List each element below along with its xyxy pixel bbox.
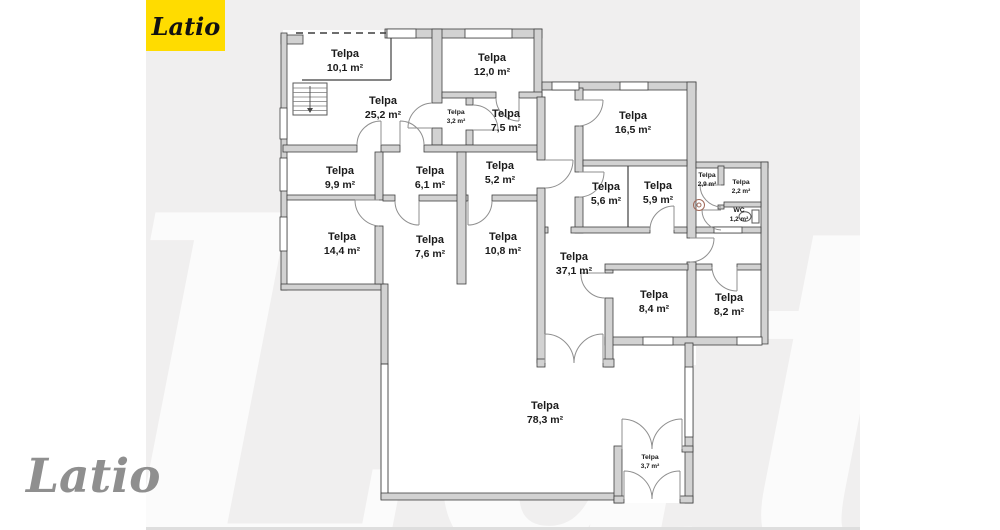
room-area: 37,1 m² xyxy=(556,265,593,277)
room-area: 10,8 m² xyxy=(485,245,522,257)
latio-footer-logo: Latio xyxy=(24,449,160,504)
room-area: 78,3 m² xyxy=(527,414,564,426)
floorplan-svg: Latio xyxy=(0,0,1000,530)
room-area: 7,6 m² xyxy=(415,248,446,260)
room-area: 2,9 m² xyxy=(698,181,716,188)
room-area: 3,2 m² xyxy=(447,118,465,125)
room-area: 5,9 m² xyxy=(643,194,674,206)
room-name: Telpa xyxy=(644,180,673,192)
room-name: Telpa xyxy=(328,231,357,243)
room-area: 10,1 m² xyxy=(327,62,364,74)
room-name: Telpa xyxy=(531,400,560,412)
room-name: Telpa xyxy=(331,48,360,60)
room-area: 25,2 m² xyxy=(365,109,402,121)
room-name: Telpa xyxy=(640,289,669,301)
floorplan-canvas: Latio xyxy=(0,0,1000,530)
room-area: 7,5 m² xyxy=(491,122,522,134)
room-name: Telpa xyxy=(492,108,521,120)
room-name: Telpa xyxy=(326,165,355,177)
room-name: Telpa xyxy=(416,165,445,177)
room-name: Telpa xyxy=(447,109,464,116)
badge-label: Latio xyxy=(151,12,221,41)
room-name: Telpa xyxy=(369,95,398,107)
room-name: Telpa xyxy=(486,160,515,172)
latio-badge: Latio xyxy=(146,0,225,51)
room-name: Telpa xyxy=(592,181,621,193)
room-area: 3,7 m² xyxy=(641,463,659,470)
room-name: Telpa xyxy=(732,179,749,186)
room-name: Telpa xyxy=(560,251,589,263)
room-area: 1,2 m² xyxy=(730,216,748,223)
room-name: Telpa xyxy=(416,234,445,246)
room-name: Telpa xyxy=(715,292,744,304)
room-area: 6,1 m² xyxy=(415,179,446,191)
room-area: 12,0 m² xyxy=(474,66,511,78)
room-name: Telpa xyxy=(619,110,648,122)
room-area: 16,5 m² xyxy=(615,124,652,136)
room-area: 8,4 m² xyxy=(639,303,670,315)
room-area: 9,9 m² xyxy=(325,179,356,191)
room-name: Telpa xyxy=(641,454,658,461)
room-area: 5,6 m² xyxy=(591,195,622,207)
staircase xyxy=(293,83,327,115)
room-name: Telpa xyxy=(698,172,715,179)
room-name: WC xyxy=(733,207,744,214)
room-area: 14,4 m² xyxy=(324,245,361,257)
room-area: 2,2 m² xyxy=(732,188,750,195)
room-area: 5,2 m² xyxy=(485,174,516,186)
room-name: Telpa xyxy=(478,52,507,64)
room-name: Telpa xyxy=(489,231,518,243)
room-area: 8,2 m² xyxy=(714,306,745,318)
